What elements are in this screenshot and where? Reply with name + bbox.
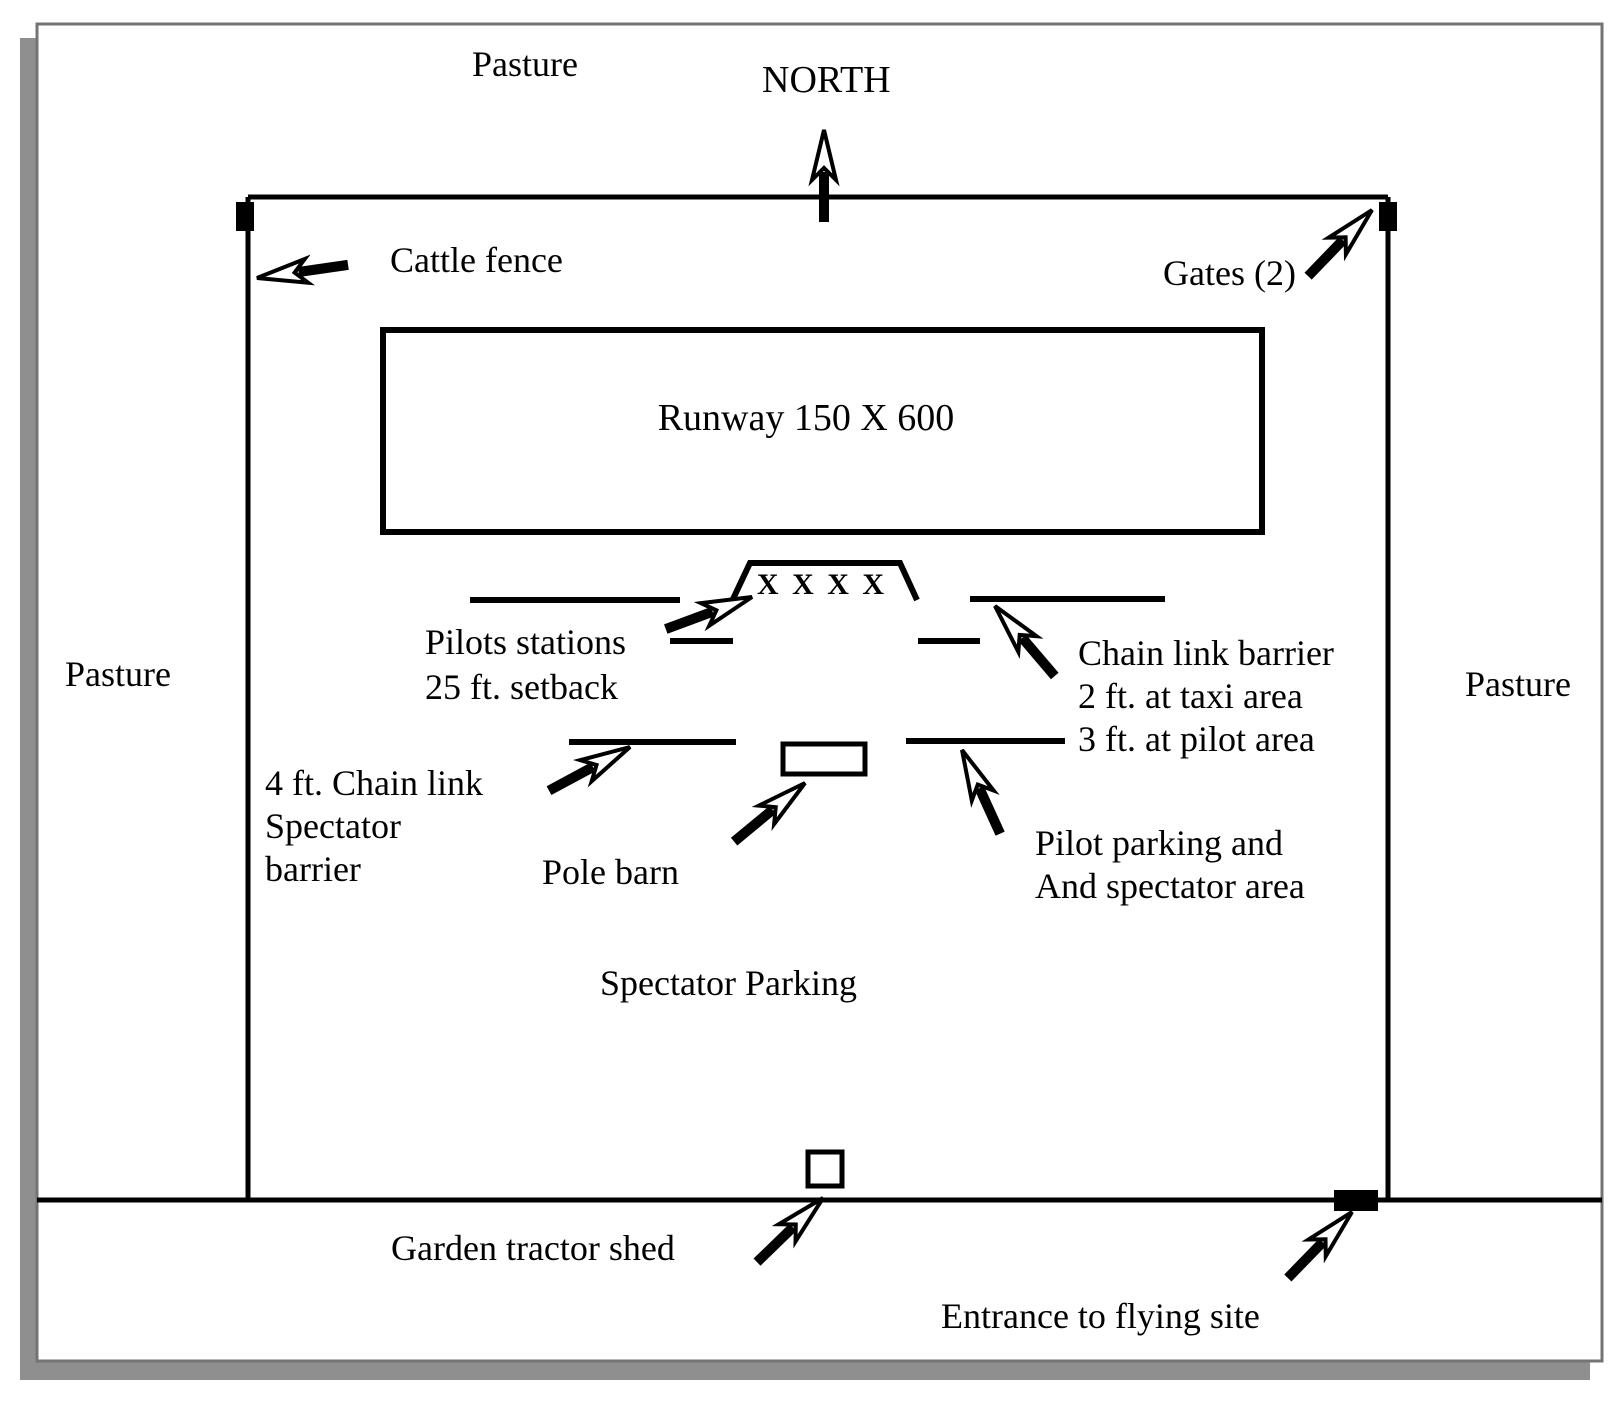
pasture-top-label: Pasture <box>472 44 578 84</box>
gate-marker-northeast <box>1379 202 1397 231</box>
spectator-barrier-label-line1: 4 ft. Chain link <box>265 763 483 803</box>
spectator-parking-label: Spectator Parking <box>600 963 857 1003</box>
pasture-right-label: Pasture <box>1465 664 1571 704</box>
pilot-stations-label-line1: Pilots stations <box>425 622 626 662</box>
spectator-barrier-label-line2: Spectator <box>265 806 401 846</box>
page-shadow-bottom <box>20 1362 1590 1380</box>
chain-link-label-line2: 2 ft. at taxi area <box>1078 676 1303 716</box>
chain-link-label-line3: 3 ft. at pilot area <box>1078 719 1315 759</box>
chain-link-label-line1: Chain link barrier <box>1078 633 1334 673</box>
pilot-parking-label-line2: And spectator area <box>1035 866 1305 906</box>
runway-label: Runway 150 X 600 <box>658 397 955 439</box>
site-plan-diagram: Runway 150 X 600 X X X X Pasture NORTH C… <box>0 0 1624 1409</box>
gates-label: Gates (2) <box>1163 253 1296 293</box>
gate-marker-northwest <box>236 202 254 231</box>
north-label: NORTH <box>762 59 891 101</box>
site-plan-figure: Runway 150 X 600 X X X X Pasture NORTH C… <box>0 0 1624 1409</box>
pasture-left-label: Pasture <box>65 654 171 694</box>
page-shadow-left <box>20 38 37 1380</box>
pole-barn-label: Pole barn <box>542 852 679 892</box>
pilot-stations-label-line2: 25 ft. setback <box>425 667 618 707</box>
garden-tractor-shed-label: Garden tractor shed <box>391 1228 675 1268</box>
page <box>37 24 1602 1361</box>
cattle-fence-label: Cattle fence <box>390 240 563 280</box>
pilot-station-marks: X X X X <box>757 568 887 601</box>
entrance-gate-marker <box>1334 1190 1378 1211</box>
pilot-parking-label-line1: Pilot parking and <box>1035 823 1283 863</box>
spectator-barrier-label-line3: barrier <box>265 849 361 889</box>
entrance-label: Entrance to flying site <box>941 1296 1260 1336</box>
